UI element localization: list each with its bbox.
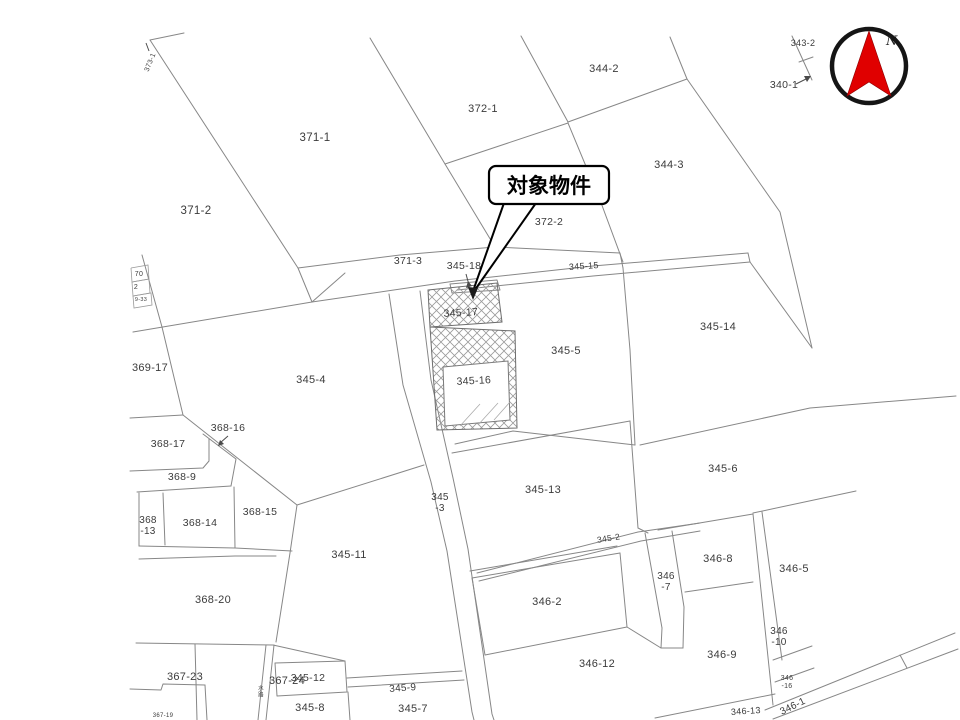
parcel-label-368-14: 368-14 [183,517,218,529]
parcel-label-371-2: 371-2 [181,205,212,217]
compass: N [832,29,906,103]
parcel-labels: 373-1343-2340-1344-2372-1371-1344-3371-2… [132,38,815,719]
parcel-label-368-9: 368-9 [168,471,196,483]
parcel-label-346-12: 346-12 [579,658,615,670]
parcel-label-371-3: 371-3 [394,255,422,267]
parcel-label-水路: 水路 [258,684,264,699]
parcel-label-345-11: 345-11 [331,549,366,561]
parcel-label-343-2: 343-2 [791,38,816,48]
parcel-label-368-17: 368-17 [151,438,186,450]
parcel-label-344-2: 344-2 [589,63,619,75]
parcel-345-16-inner-box [443,361,510,426]
parcel-label-369-17: 369-17 [132,362,168,374]
parcel-label-346-10: 346-10 [770,626,788,648]
parcel-label-346-7: 346-7 [657,571,675,593]
parcel-label-345-17: 345-17 [443,306,478,320]
callout-label: 対象物件 [507,174,591,198]
parcel-label-367-23: 367-23 [167,671,203,683]
parcel-label-344-3: 344-3 [654,159,684,171]
parcel-label-346-8: 346-8 [703,553,733,565]
parcel-label-345-5: 345-5 [551,345,581,357]
compass-north-label: N [885,34,898,49]
parcel-label-70: 70 [135,271,143,278]
parcel-label-368-16: 368-16 [211,422,246,434]
parcel-label-9-33: 9-33 [135,297,147,303]
parcel-label-345-9: 345-9 [389,682,417,695]
parcel-label-367-19: 367-19 [153,713,174,719]
parcel-label-2: 2 [134,284,138,291]
cadastral-map: 373-1343-2340-1344-2372-1371-1344-3371-2… [0,0,960,720]
target-parcels-hatched [428,283,517,430]
parcel-label-346-16: 346-16 [781,675,794,690]
parcel-label-368-15: 368-15 [243,506,278,518]
parcel-label-346-2: 346-2 [532,596,562,608]
parcel-label-346-13: 346-13 [731,705,761,717]
parcel-label-345-14: 345-14 [700,321,736,333]
parcel-label-345-12: 345-12 [291,672,326,684]
parcel-label-345-4: 345-4 [296,374,326,386]
parcel-label-346-9: 346-9 [707,649,737,661]
parcel-label-345-15: 345-15 [569,260,599,272]
parcel-label-340-1: 340-1 [770,79,798,91]
parcel-label-345-6: 345-6 [708,463,738,475]
parcel-label-345-8: 345-8 [295,702,325,714]
cadastral-map-page: 373-1343-2340-1344-2372-1371-1344-3371-2… [0,0,960,720]
parcel-label-368-13: 368-13 [139,515,157,537]
parcel-label-345-7: 345-7 [398,703,428,715]
target-property-callout: 対象物件 [468,166,609,300]
parcel-label-368-20: 368-20 [195,594,231,606]
parcel-label-345-3: 345-3 [431,492,449,514]
parcel-label-345-16: 345-16 [456,374,491,388]
parcel-boundaries [130,33,958,720]
parcel-label-371-1: 371-1 [300,132,331,144]
parcel-label-345-2: 345-2 [596,531,621,545]
parcel-label-373-1: 373-1 [144,52,158,73]
parcel-label-372-1: 372-1 [468,103,498,115]
parcel-345-17-hatch [428,283,502,327]
parcel-label-345-13: 345-13 [525,484,561,496]
parcel-label-372-2: 372-2 [535,216,563,228]
parcel-label-346-5: 346-5 [779,563,809,575]
parcel-label-345-18: 345-18 [447,260,482,272]
